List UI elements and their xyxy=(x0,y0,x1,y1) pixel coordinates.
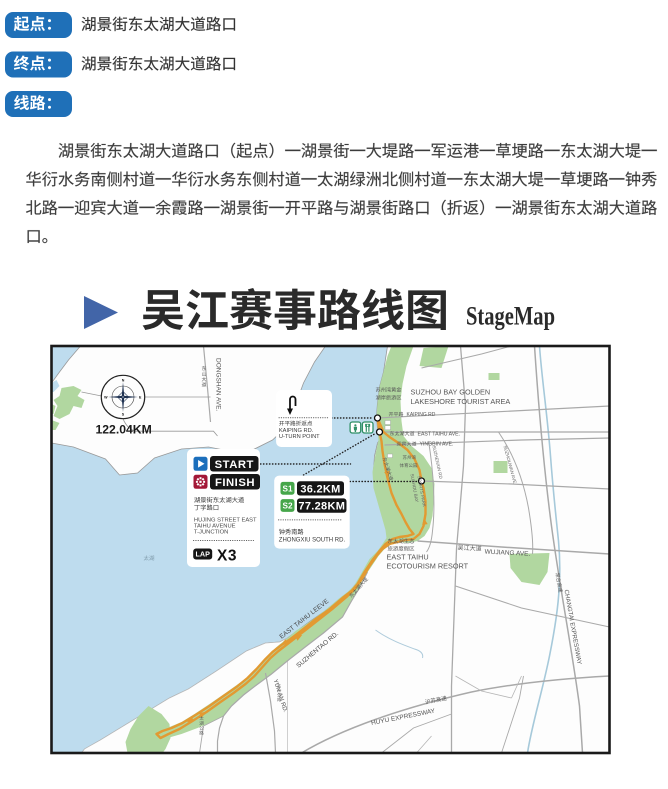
svg-text:LAKESHORE TOURIST AREA: LAKESHORE TOURIST AREA xyxy=(411,397,511,406)
svg-text:KAIPING RD: KAIPING RD xyxy=(407,412,436,418)
svg-text:122.04KM: 122.04KM xyxy=(96,423,152,437)
svg-text:START: START xyxy=(215,459,254,471)
svg-text:ZHONGXIU SOUTH RD.: ZHONGXIU SOUTH RD. xyxy=(279,538,346,544)
svg-text:EAST TAIHU AVE.: EAST TAIHU AVE. xyxy=(418,431,461,437)
svg-text:DONGSHAN AVE.: DONGSHAN AVE. xyxy=(215,358,222,412)
svg-text:S2: S2 xyxy=(282,502,292,511)
svg-text:T-JUNCTION: T-JUNCTION xyxy=(194,529,228,535)
svg-text:N: N xyxy=(122,379,125,383)
svg-text:KAIPING RD.: KAIPING RD. xyxy=(279,428,314,434)
svg-text:X3: X3 xyxy=(217,548,237,565)
svg-text:U-TURN POINT: U-TURN POINT xyxy=(279,434,320,440)
svg-text:36.2KM: 36.2KM xyxy=(300,483,340,495)
svg-text:FINISH: FINISH xyxy=(215,477,255,489)
svg-text:W: W xyxy=(104,395,108,399)
svg-text:SUZHOU BAY GOLDEN: SUZHOU BAY GOLDEN xyxy=(411,388,491,397)
svg-text:ECOTOURISM RESORT: ECOTOURISM RESORT xyxy=(387,562,469,571)
svg-text:77.28KM: 77.28KM xyxy=(298,501,345,513)
svg-text:LAP: LAP xyxy=(196,550,211,559)
svg-text:EAST TAIHU: EAST TAIHU xyxy=(387,553,429,562)
svg-text:StageMap: StageMap xyxy=(466,302,555,331)
svg-text:S1: S1 xyxy=(282,484,292,493)
